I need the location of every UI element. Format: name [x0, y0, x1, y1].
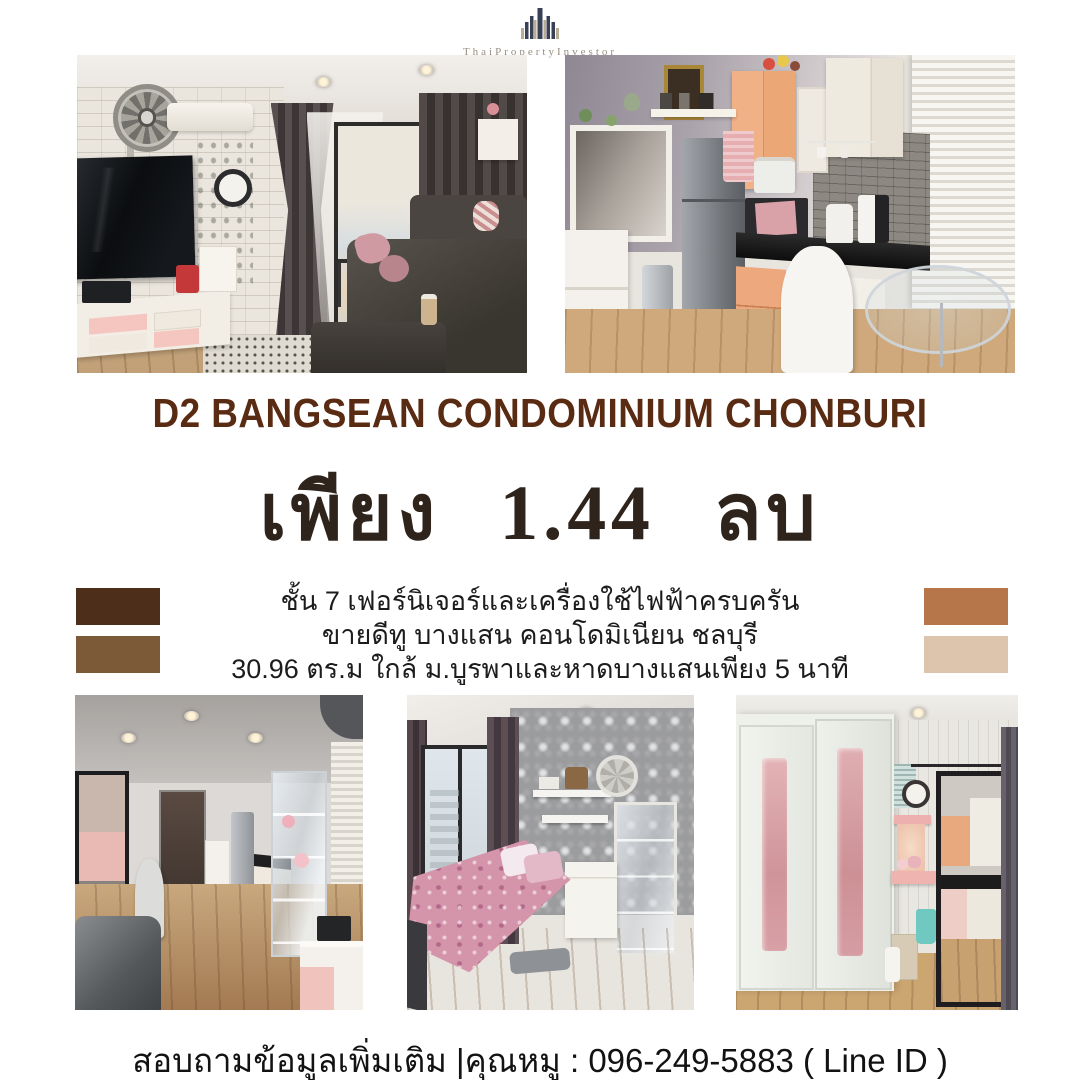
coffee-maker [858, 195, 890, 243]
fruit-decor [777, 55, 789, 67]
photo-wardrobe-vanity [736, 695, 1018, 1010]
air-conditioner [167, 103, 253, 132]
photo-bedroom [407, 695, 694, 1010]
laundry-bin [885, 947, 899, 982]
pink-shelf [894, 815, 931, 824]
pink-pillow [379, 255, 409, 282]
ceiling-light [248, 733, 263, 743]
storage-drawers [199, 246, 237, 293]
white-desk [565, 862, 617, 938]
open-shelf [797, 87, 828, 174]
tv [77, 155, 196, 279]
gray-sofa [75, 916, 161, 1011]
color-swatch [924, 588, 1008, 625]
reflected-lower-cabinet [941, 889, 967, 939]
doorway-mirror [936, 771, 1011, 1008]
reflected-floor [941, 939, 1006, 1003]
cabinet-drawer [89, 332, 147, 353]
teal-bin [916, 909, 936, 944]
vanity-item [908, 856, 921, 868]
pink-cabinet [300, 941, 363, 1010]
vanity-item [897, 859, 908, 870]
price-headline: เพียง 1.44 ลบ [0, 450, 1080, 574]
wardrobe [736, 714, 894, 991]
display-item [294, 853, 309, 868]
plant-pot [579, 109, 592, 122]
foreground-object [407, 919, 427, 1010]
ceiling-light [316, 77, 331, 87]
property-ad-poster: ThaiPropertyInvestor [0, 0, 1080, 1080]
pink-towel [723, 131, 755, 182]
mug-rail [808, 141, 876, 143]
project-title: D2 BANGSEAN CONDOMINIUM CHONBURI [54, 390, 1026, 437]
pink-pillow [522, 849, 564, 883]
mirror [570, 125, 672, 242]
fan [596, 755, 638, 797]
side-stool [421, 294, 437, 325]
photo-living-room [77, 55, 527, 373]
cabinet-drawer [89, 313, 147, 334]
table-leg [940, 303, 943, 367]
photo-kitchen [565, 55, 1015, 373]
white-chair [781, 246, 853, 373]
ceiling-light [121, 733, 136, 743]
rice-cooker [754, 157, 795, 193]
plant-pot [606, 115, 617, 126]
display-item [282, 815, 295, 828]
floating-shelf [542, 815, 608, 823]
wall-shelf [478, 119, 519, 160]
wall-shelf [651, 109, 737, 117]
mug [840, 147, 849, 158]
detail-line: ชั้น 7 เฟอร์นิเจอร์และเครื่องใช้ไฟฟ้าครบ… [0, 584, 1080, 618]
kettle [826, 204, 853, 242]
window-blinds [331, 742, 363, 887]
striped-pillow [473, 201, 499, 231]
photo-hallway [75, 695, 363, 1010]
cabinet-drawer [154, 327, 200, 347]
shelf-basket [539, 777, 559, 790]
red-figurine [176, 265, 199, 294]
mug [817, 147, 826, 158]
property-details: ชั้น 7 เฟอร์นิเจอร์และเครื่องใช้ไฟฟ้าครบ… [0, 584, 1080, 686]
ceiling-light [911, 708, 926, 718]
detail-line: ขายดีทู บางแสน คอนโดมิเนียน ชลบุรี [0, 618, 1080, 652]
shelf-items [660, 93, 728, 109]
dark-curtain [1001, 727, 1018, 1011]
color-swatch [924, 636, 1008, 673]
contact-line: สอบถามข้อมูลเพิ่มเติม |คุณหมู : 096-249-… [0, 1034, 1080, 1080]
glass-table [865, 265, 1011, 354]
ceiling-light [419, 65, 434, 75]
reflected-countertop [941, 875, 1006, 889]
shelf-decor [565, 767, 588, 789]
set-top-box [82, 281, 132, 303]
swatch-column-right [924, 588, 1008, 673]
electronics [317, 916, 352, 941]
flower-vase [624, 93, 640, 111]
reflected-cabinet-peach [941, 816, 970, 866]
decor-ball [487, 103, 499, 115]
detail-line: 30.96 ตร.ม ใกล้ ม.บูรพาและหาดบางแสนเพียง… [0, 652, 1080, 686]
curtain-rod [911, 764, 1007, 767]
ceiling-light [184, 711, 199, 721]
vanity-counter [891, 871, 936, 884]
building-bars-icon [517, 27, 563, 44]
sliding-door [739, 725, 814, 990]
brand-logo: ThaiPropertyInvestor [0, 6, 1080, 58]
sliding-door [815, 719, 892, 989]
pink-glass-panel [762, 758, 786, 951]
pink-glass-panel [837, 748, 863, 956]
floating-shelf [533, 790, 610, 798]
window-view [430, 790, 459, 872]
ottoman [311, 322, 446, 373]
